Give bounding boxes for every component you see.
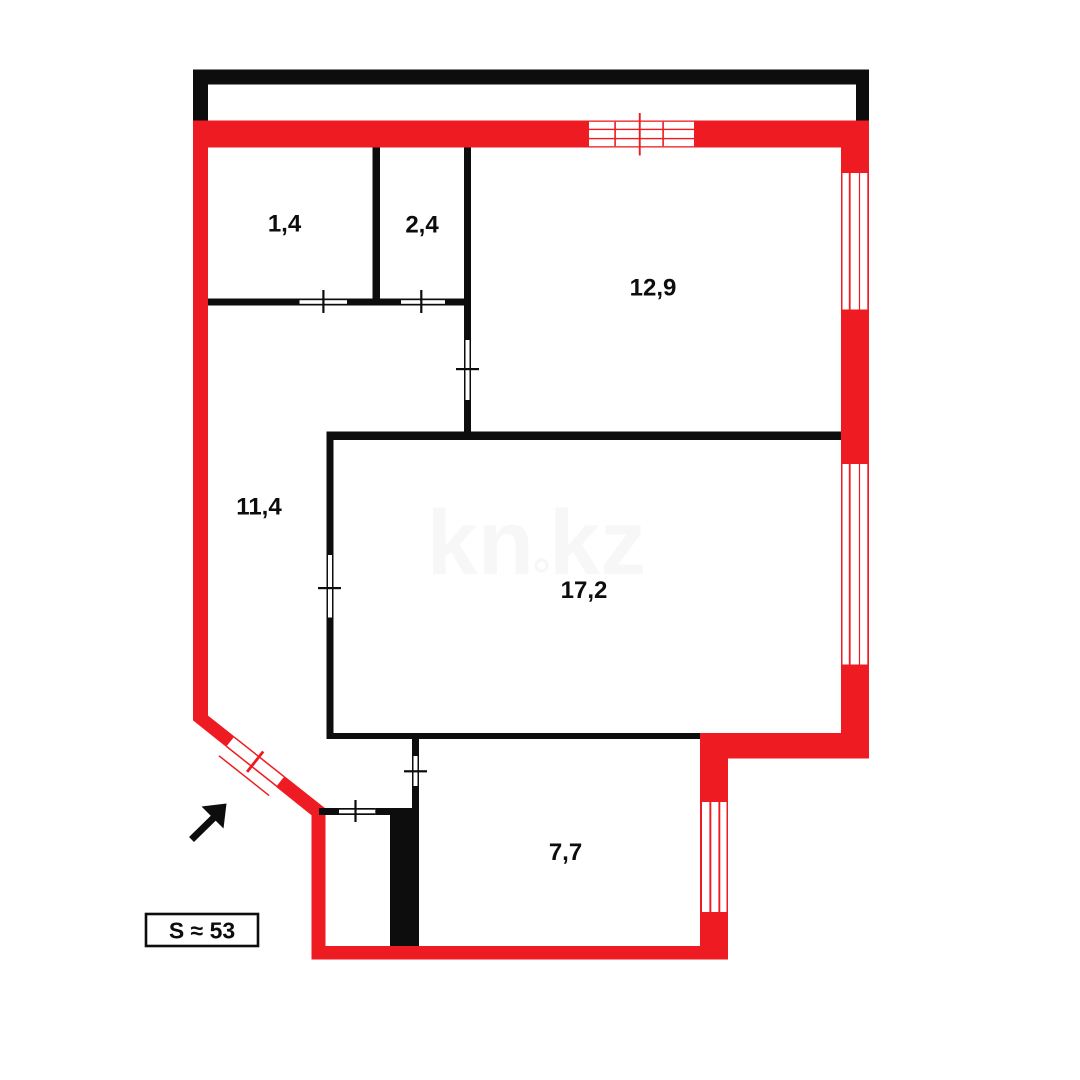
svg-text:7,7: 7,7 <box>549 839 582 866</box>
svg-text:kn: kn <box>427 492 534 594</box>
svg-text:S ≈ 53: S ≈ 53 <box>169 918 235 944</box>
svg-text:17,2: 17,2 <box>561 577 608 604</box>
svg-text:12,9: 12,9 <box>630 274 677 301</box>
svg-text:1,4: 1,4 <box>268 211 302 238</box>
svg-text:2,4: 2,4 <box>405 212 439 239</box>
svg-text:11,4: 11,4 <box>236 494 282 521</box>
